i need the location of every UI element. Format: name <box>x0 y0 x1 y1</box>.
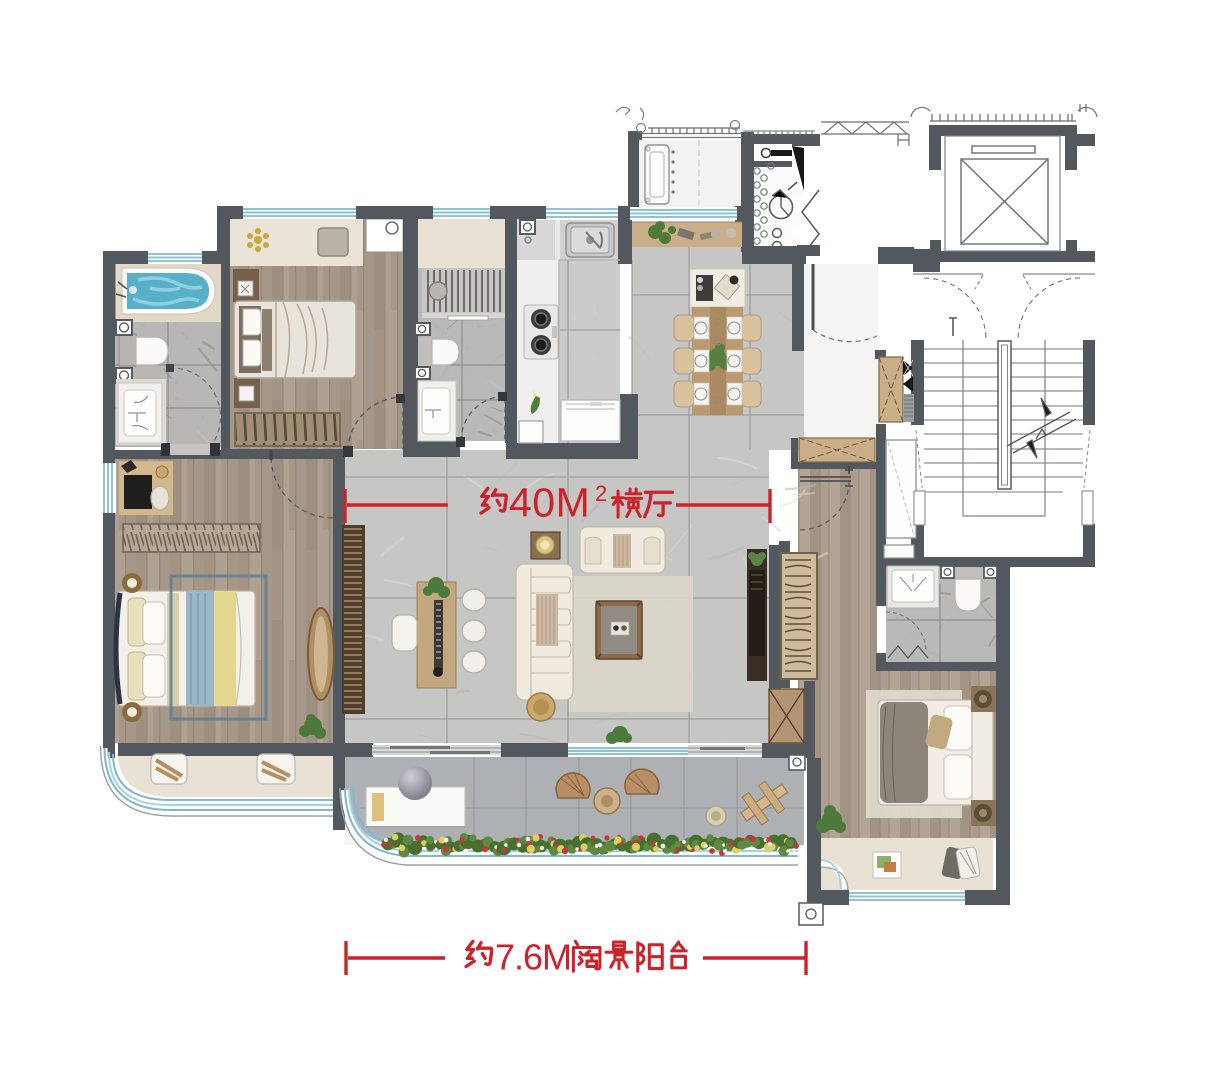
svg-text:7.6M: 7.6M <box>495 937 571 978</box>
svg-text:2: 2 <box>595 481 607 506</box>
svg-text:40M: 40M <box>509 480 590 526</box>
